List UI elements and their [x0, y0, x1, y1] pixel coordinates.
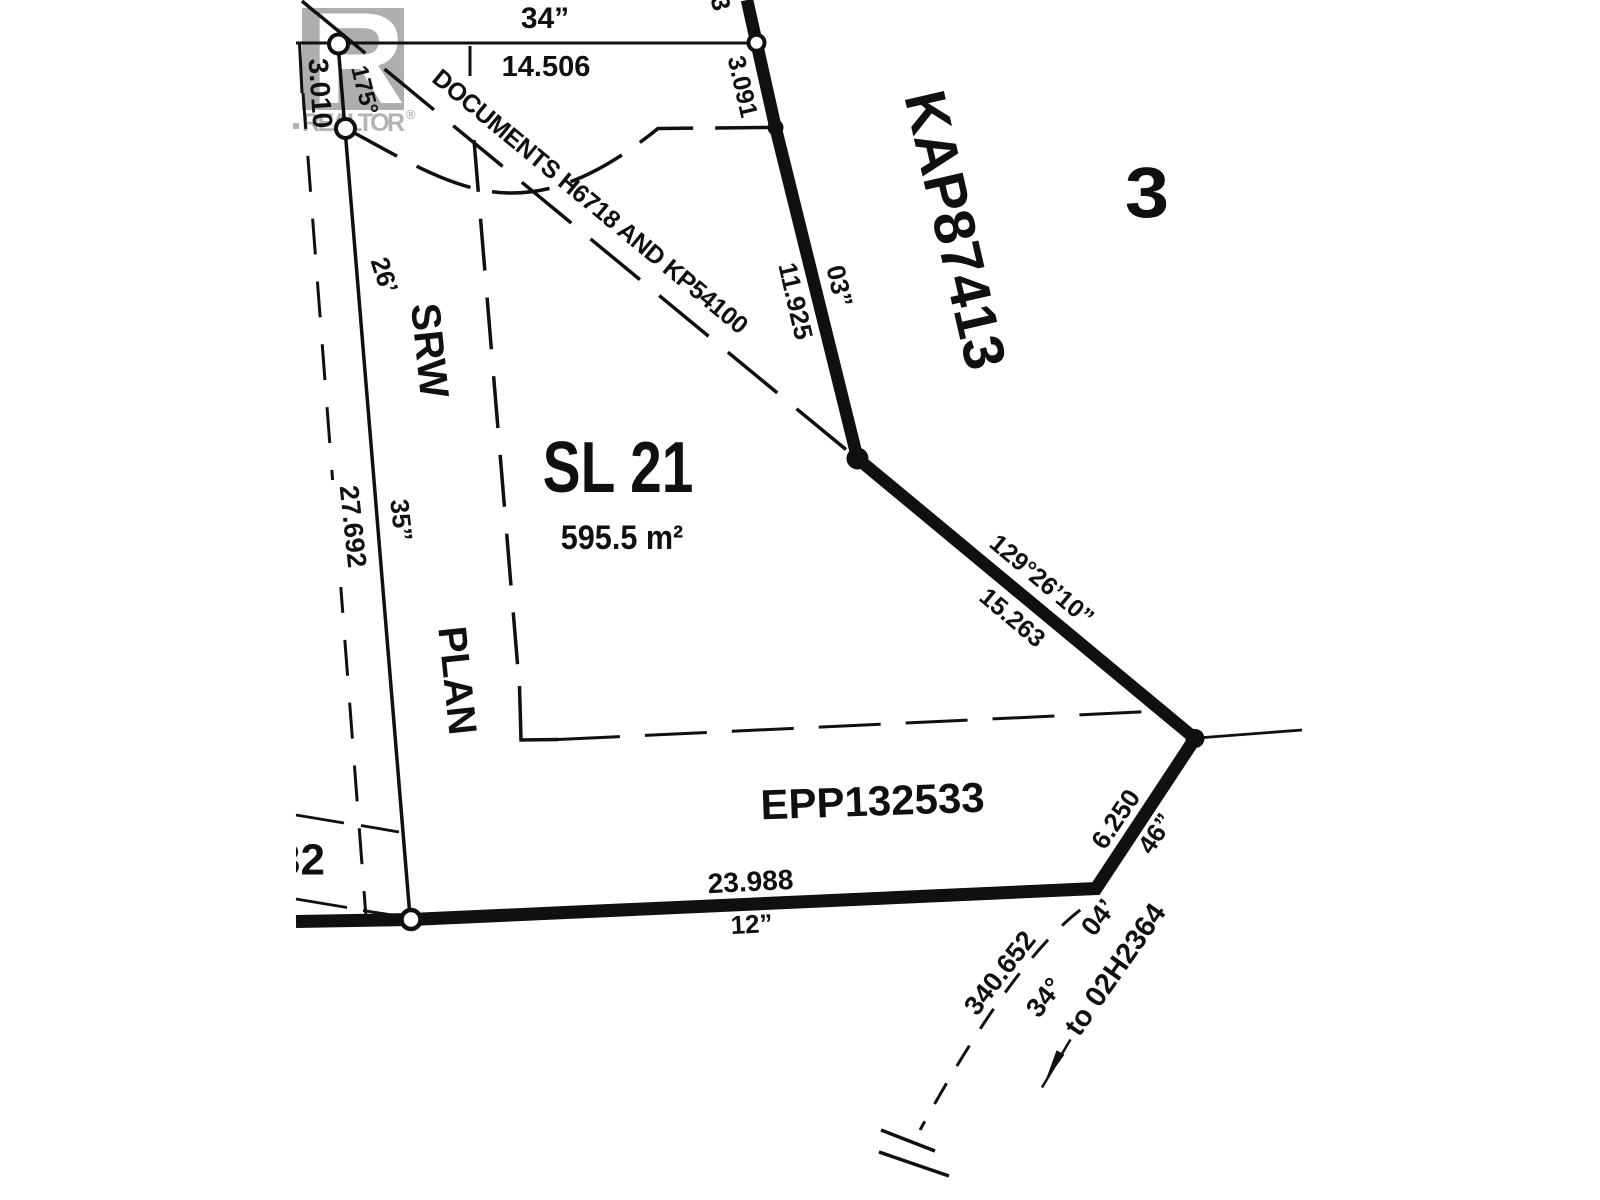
svg-text:34”: 34”: [521, 2, 569, 35]
svg-text:23.988: 23.988: [707, 864, 794, 899]
svg-text:3.010: 3.010: [303, 57, 339, 129]
svg-text:12”: 12”: [730, 908, 773, 940]
svg-text:SL 21: SL 21: [543, 427, 694, 508]
svg-text:14.506: 14.506: [502, 51, 591, 83]
svg-text:3: 3: [1125, 153, 1169, 232]
svg-text:595.5 m²: 595.5 m²: [561, 519, 684, 557]
svg-text:35”: 35”: [384, 498, 418, 543]
svg-text:®: ®: [406, 107, 416, 122]
svg-text:EPP132533: EPP132533: [760, 774, 986, 829]
